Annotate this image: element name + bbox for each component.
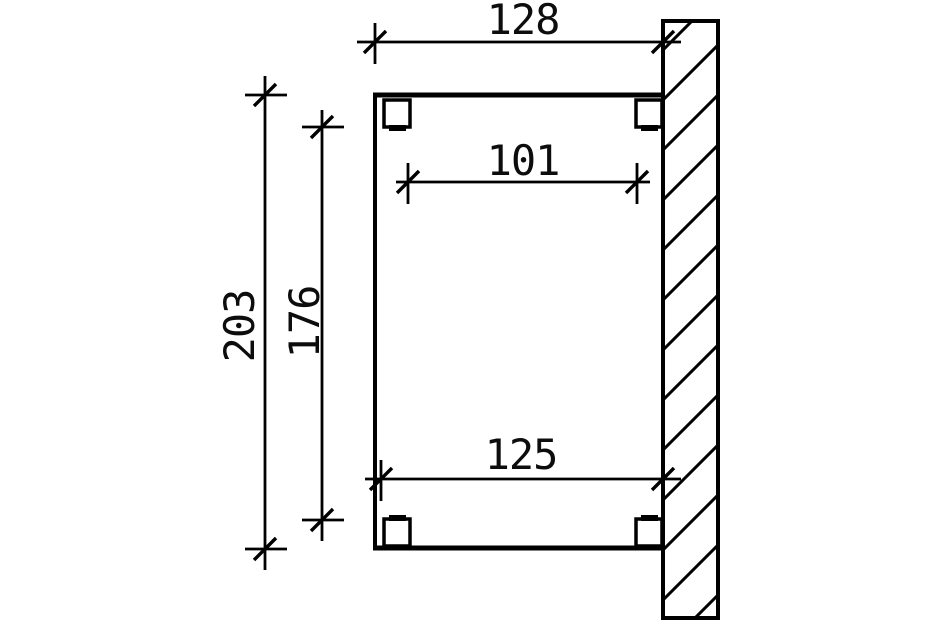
dim-label-inner-height: 176 [284,286,326,359]
wall-section [658,0,723,628]
dim-label-bottom-width: 125 [485,434,558,476]
line-work [0,0,940,628]
post-top-right [636,100,662,127]
dim-label-overall-width: 128 [487,0,560,41]
post-top-left [384,100,410,127]
wall-outline [663,21,718,618]
post-bottom-right [636,519,662,546]
dim-label-inner-width: 101 [487,140,560,182]
post-bottom-left [384,519,410,546]
technical-drawing-canvas: 128 101 125 203 176 [0,0,940,628]
dim-label-overall-height: 203 [219,290,261,363]
